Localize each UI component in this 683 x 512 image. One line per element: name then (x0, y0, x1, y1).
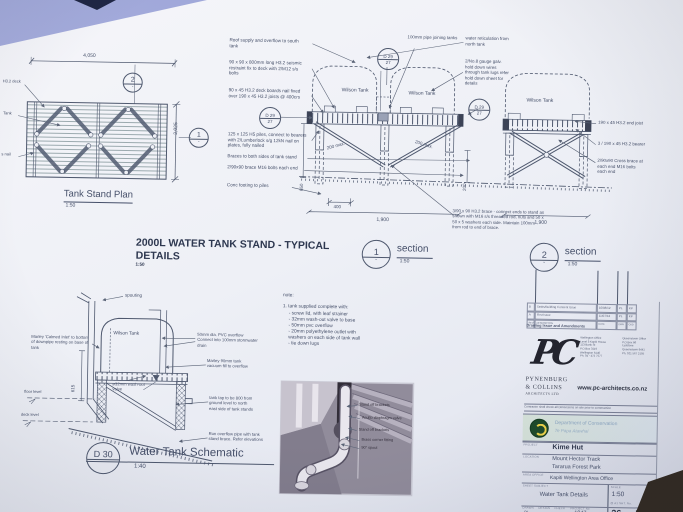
callout-conc-footing: Conc footing to piles (227, 182, 297, 189)
plan-edge-label: H3.2 deck (3, 78, 21, 83)
callout-seismic-restraint: 90 x 90 x 800mm long H3.2 seismic restra… (229, 59, 309, 78)
sheet-main-title: 2000L WATER TANK STAND - TYPICAL DETAILS… (135, 237, 329, 271)
plan-dim-width: 4,050 (83, 53, 96, 59)
firm-name-line1: PYNENBURG (526, 377, 568, 385)
drawing-content: 4,050 2 - 1 - 2,025 H3.2 deck Tank s nai… (0, 0, 683, 512)
firm-office-queenstown: Queenstown Office P.O.Box 86 Lydstone Qu… (622, 337, 658, 356)
section-1-label: section (397, 243, 433, 258)
scale-note: @ A1 SHT. No. (610, 502, 632, 506)
section-2-scale: 1:50 (568, 261, 578, 267)
dim-400: 400 (334, 204, 342, 210)
marker-bottom: 27 (268, 118, 273, 123)
marker-dash: - (375, 257, 377, 262)
amend-col-date: DATE (596, 321, 616, 330)
marker-number: 1 (197, 132, 201, 139)
label-washout-valve: ø32mm wash-out valve (112, 381, 150, 392)
location-line1: Mount Hector Track (552, 456, 600, 464)
firm-office-wellington: Wellington Office Level 3 Kapiti House 1… (580, 336, 620, 358)
plan-edge-label: s nail (1, 151, 21, 156)
scale-label: SCALE (611, 486, 621, 490)
label-tank-tap: tank tap to be 800 from ground level to … (209, 395, 255, 412)
plan-title: Tank Stand Plan (64, 188, 133, 203)
drawing-sheet: 4,050 2 - 1 - 2,025 H3.2 deck Tank s nai… (0, 0, 683, 512)
rev-value: B (635, 508, 642, 512)
callout-deck-boards: 90 x 45 H3.2 deck boards nail fixed over… (228, 87, 308, 100)
inset-label-diaphragm-valve: Acutto diaphragm valve (362, 416, 402, 421)
location-line2: Tararua Forest Park (552, 464, 601, 472)
schematic-title: Water Tank Schematic (129, 445, 244, 461)
label-spouting: spouting (125, 293, 142, 299)
label-pvc-overflow: 50mm dia. PVC overflow Connect into 100m… (197, 332, 259, 349)
brace-note: 3/90 x 90 H3.2 brace - connect ends to s… (452, 208, 544, 231)
area-office-label: AREA OFFICE (523, 473, 544, 477)
dim-615: 615 (70, 385, 76, 393)
amend-drn: PL (617, 304, 627, 313)
marker-top: D 30 (94, 449, 113, 459)
callout-holddown-wires: 2/No.8 gauge galv. hold down wires throu… (465, 58, 511, 86)
schematic-scale: 1:40 (134, 464, 146, 472)
photo-scene: 4,050 2 - 1 - 2,025 H3.2 deck Tank s nai… (0, 0, 683, 512)
marker-dash: - (132, 85, 134, 89)
marker-bottom: 27 (386, 60, 391, 65)
location-label: LOCATION (523, 455, 539, 459)
dim-650: 650 (299, 184, 305, 192)
section-1-scale: 1:50 (400, 258, 410, 264)
design-label: DESIGN (538, 507, 550, 511)
callout-water-reticulation: water reticulation from north tank (465, 35, 517, 47)
amend-rev: A (527, 311, 535, 320)
project-label: PROJECT (523, 443, 538, 447)
amend-date: 11/07/12 (597, 312, 617, 321)
tank-label: Wilson Tank (342, 87, 369, 94)
doc-logo-icon (530, 419, 549, 438)
callout-end-joist: 190 x 45 H3.2 end joist (598, 120, 653, 126)
sheet-subject: Water Tank Details (540, 492, 588, 500)
callout-bearer: 3 / 190 x 45 H3.2 bearer (598, 141, 648, 147)
firm-name-line3: ARCHITECTS LTD (525, 392, 567, 397)
tank-label: Wilson Tank (526, 97, 553, 104)
inset-label-spout: 90° spout (361, 446, 377, 451)
amend-drn: PL (617, 313, 627, 322)
marker-dash: - (543, 260, 545, 265)
sheet-no-value: 26 (611, 508, 621, 512)
doc-client-name: Department of Conservation (555, 420, 618, 427)
section-number: 1 (374, 246, 379, 256)
scale-divider (607, 485, 608, 508)
amend-date: 10/08/12 (597, 304, 617, 313)
doc-client-maori: Te Papa Atawhai (555, 428, 589, 434)
firm-name: PYNENBURG & COLLINS ARCHITECTS LTD (525, 377, 567, 397)
amend-chk: KP (627, 313, 637, 322)
marker-dash: - (198, 140, 200, 144)
plan-scale: 1:50 (66, 202, 76, 208)
callout-pipe-joining: 100mm pipe joining tanks (408, 34, 458, 40)
sheetno-divider (607, 508, 608, 512)
marker-number: 2 (131, 77, 135, 84)
inset-label-brass-corner: Brass corner fitting (361, 438, 393, 443)
dim-200: 200 (462, 183, 468, 191)
check-label: CHECK (554, 507, 565, 511)
doc-koru-icon (534, 423, 546, 435)
amend-col-drn: DRN (616, 321, 626, 330)
dim-span1: 1,900 (376, 217, 389, 223)
amend-rev: B (527, 303, 535, 312)
project-name: Kime Hut (552, 444, 583, 453)
firm-website: www.pc-architects.co.nz (577, 385, 647, 394)
sheet-label: SHEET SUBJECT (523, 484, 548, 488)
callout-cross-brace: 2/90x90 Cross brace at each end M16 bolt… (597, 158, 645, 175)
amendments-caption: Drawing Issue and Amendments (526, 324, 585, 330)
marker-bottom: 27 (477, 110, 482, 115)
label-run-overflow: Run overflow pipe with tank stand brace.… (208, 431, 268, 443)
section-number: 2 (542, 249, 547, 259)
plan-dim-height: 2,025 (173, 122, 179, 135)
label-floor-level: floor level (24, 389, 41, 394)
callout-roof-supply: Roof supply and overflow to south tank (229, 37, 301, 50)
label-calmed-inlet: Marley 'Calmed Inlet' to bottom of downp… (31, 334, 89, 351)
inset-label-standoff-1: Stand off brackets (359, 403, 390, 408)
plan-edge-label: Tank (3, 110, 23, 115)
scale-value: 1:50 (612, 491, 625, 499)
notes-block: note: 1. tank supplied complete with: - … (282, 293, 408, 349)
label-vacuum-fill: Marley 90mm tank vacuum fill to overflow (207, 358, 249, 369)
callout-piles: 125 x 125 H5 piles, connect to bearers w… (228, 131, 312, 150)
section-2-label: section (565, 246, 601, 261)
area-office-value: Kapiti Wellington Area Office (550, 475, 613, 482)
notes-heading: note: (283, 293, 408, 301)
amend-chk: KP (627, 304, 637, 313)
doc-client-band: Department of Conservation Te Papa Atawh… (523, 413, 657, 443)
amend-col-chk: CKD (626, 321, 636, 330)
label-deck-level: deck level (21, 412, 39, 417)
inset-label-standoff-2: Stand off brackets (359, 428, 390, 433)
firm-logo: PC (529, 332, 576, 375)
tank-label: Wilson Tank (113, 331, 139, 337)
tank-label: Wilson Tank (409, 90, 436, 97)
